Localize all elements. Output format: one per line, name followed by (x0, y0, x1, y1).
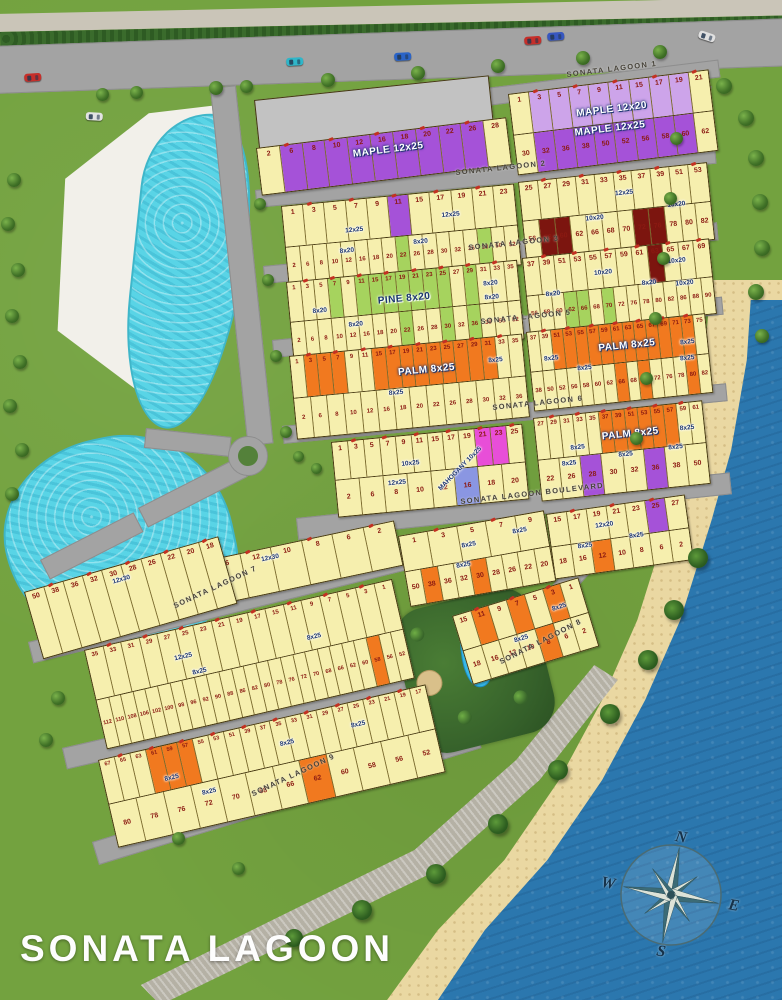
tree-icon (754, 240, 770, 256)
lot-number: 22 (433, 402, 440, 409)
lot-number: 58 (661, 132, 670, 140)
lot-number: 76 (666, 374, 673, 381)
lot-number: 29 (471, 342, 478, 349)
lot-number: 2 (266, 150, 271, 157)
lot-number: 3 (537, 94, 542, 101)
tree-icon (653, 45, 667, 59)
lot-number: 12 (598, 552, 607, 560)
lot-number: 11 (477, 610, 486, 619)
lot-number: 69 (697, 243, 705, 251)
lot-number: 12 (440, 484, 448, 492)
lot-number: 20 (540, 561, 549, 569)
lot-2[interactable]: 2 (336, 478, 363, 517)
lot-number: 51 (558, 257, 566, 265)
lot-number: 25 (510, 428, 518, 436)
palm-tree-icon (664, 600, 684, 620)
lot-number: 35 (618, 175, 626, 183)
lot-number: 25 (353, 704, 360, 711)
lot-number: 36 (651, 464, 659, 472)
palm-tree-icon (688, 548, 708, 568)
lot-35[interactable]: 35 (508, 335, 525, 377)
lot-number: 1 (382, 585, 387, 592)
lot-number: 16 (463, 482, 471, 490)
lot-number: 17 (385, 276, 392, 283)
lot-number: 21 (478, 190, 486, 198)
lot-number: 10 (416, 487, 424, 495)
lot-number: 61 (613, 326, 620, 333)
lot-number: 5 (322, 356, 326, 362)
lot-number: 25 (524, 185, 532, 193)
lot-number: 29 (145, 638, 153, 645)
lot-number: 7 (514, 600, 520, 608)
lot-number: 18 (400, 405, 407, 412)
lot-number: 57 (666, 407, 673, 414)
lot-number: 28 (491, 122, 500, 130)
lot-number: 1 (338, 445, 343, 452)
lot-number: 78 (276, 680, 283, 687)
lot-number: 18 (372, 255, 379, 262)
lot-number: 30 (444, 323, 451, 330)
lot-number: 29 (466, 268, 473, 275)
lot-8[interactable]: 8 (383, 473, 410, 512)
lot-number: 76 (177, 805, 186, 814)
lot-number: 28 (492, 569, 501, 577)
lot-number: 80 (655, 297, 662, 304)
lot-number: 60 (362, 660, 369, 667)
lot-number: 35 (507, 264, 514, 271)
lot-number: 5 (346, 593, 351, 600)
lot-number: 76 (630, 300, 637, 307)
lot-number: 25 (439, 271, 446, 278)
lot-number: 1 (412, 537, 417, 545)
tree-icon (748, 284, 764, 300)
lot-number: 27 (163, 634, 171, 641)
palm-tree-icon (352, 900, 372, 920)
lot-number: 6 (659, 544, 664, 551)
lot-number: 32 (542, 147, 551, 155)
lot-number: 6 (346, 534, 351, 542)
lot-number: 38 (535, 387, 542, 394)
lot-number: 18 (487, 480, 495, 488)
lot-69[interactable]: 69 (694, 239, 712, 277)
tree-icon (7, 173, 21, 187)
lot-number: 51 (229, 733, 236, 740)
lot-9[interactable]: 9 (515, 511, 549, 550)
compass-star (601, 825, 740, 964)
lot-number: 30 (476, 572, 485, 580)
lot-number: 33 (498, 339, 505, 346)
tree-icon (209, 81, 223, 95)
lot-number: 78 (678, 372, 685, 379)
compass-rose: N E S W (596, 822, 746, 969)
lot-number: 78 (669, 220, 677, 228)
lot-number: 35 (275, 722, 282, 729)
lot-number: 9 (350, 354, 354, 360)
lot-number: 19 (399, 275, 406, 282)
tree-icon (254, 198, 266, 210)
lot-number: 17 (655, 79, 664, 87)
lot-number: 51 (553, 332, 560, 339)
roundabout (229, 437, 267, 475)
lot-6[interactable]: 6 (359, 476, 386, 515)
lot-number: 72 (618, 301, 625, 308)
lot-number: 56 (641, 135, 650, 143)
lot-number: 16 (378, 136, 387, 144)
lot-number: 8 (335, 411, 339, 417)
lot-number: 50 (411, 583, 420, 591)
lot-number: 15 (272, 609, 280, 616)
lot-number: 25 (181, 630, 189, 637)
lot-number: 22 (400, 252, 407, 259)
lot-number: 19 (457, 192, 465, 200)
lot-number: 15 (635, 82, 644, 90)
lot-number: 2 (679, 541, 684, 548)
lot-number: 55 (653, 409, 660, 416)
lot-number: 36 (562, 145, 571, 153)
lot-number: 28 (588, 471, 596, 479)
lot-number: 23 (632, 505, 641, 513)
lot-number: 82 (701, 370, 708, 377)
lot-number: 5 (470, 527, 475, 535)
lot-90[interactable]: 90 (701, 277, 716, 314)
lot-number: 28 (128, 564, 137, 573)
lot-number: 68 (593, 304, 600, 311)
lot-number: 62 (350, 663, 357, 670)
tree-icon (411, 66, 425, 80)
lot-number: 27 (453, 269, 460, 276)
lot-number: 38 (427, 580, 436, 588)
lot-10[interactable]: 10 (407, 471, 434, 510)
lot-25[interactable]: 25 (506, 425, 524, 463)
lot-number: 21 (412, 273, 419, 280)
lot-number: 8 (320, 260, 324, 266)
lot-number: 28 (427, 250, 434, 257)
lot-number: 3 (354, 443, 359, 450)
lot-number: 50 (31, 592, 40, 601)
lot-number: 98 (178, 702, 185, 709)
lot-number: 30 (109, 570, 118, 579)
tree-icon (670, 132, 683, 145)
lot-23[interactable]: 23 (493, 185, 517, 226)
lot-number: 57 (604, 253, 612, 261)
lot-number: 7 (333, 281, 337, 287)
lot-number: 30 (609, 469, 617, 477)
lot-number: 57 (182, 743, 189, 750)
lot-number: 62 (575, 230, 583, 238)
lot-21[interactable]: 21 (689, 71, 713, 113)
lot-number: 15 (375, 351, 382, 358)
lot-number: 31 (484, 341, 491, 348)
tree-icon (738, 110, 754, 126)
lot-number: 21 (416, 347, 423, 354)
lot-number: 10 (331, 259, 338, 266)
lot-number: 53 (213, 736, 220, 743)
lot-number: 20 (416, 403, 423, 410)
lot-number: 36 (70, 581, 79, 590)
lot-number: 6 (306, 262, 310, 268)
lot-number: 58 (374, 657, 381, 664)
lot-number: 29 (550, 420, 557, 427)
lot-number: 2 (297, 338, 301, 344)
tree-icon (262, 274, 274, 286)
lot-number: 29 (322, 711, 329, 718)
lot-number: 70 (605, 303, 612, 310)
lot-53[interactable]: 53 (688, 163, 710, 202)
palm-tree-icon (548, 760, 568, 780)
lot-number: 9 (346, 280, 350, 286)
lot-number: 69 (660, 321, 667, 328)
compass-north-label: N (674, 828, 689, 848)
lot-number: 11 (358, 278, 365, 285)
lot-number: 62 (606, 380, 613, 387)
tree-icon (15, 443, 29, 457)
tree-icon (755, 329, 769, 343)
lot-number: 68 (606, 227, 614, 235)
lot-number: 22 (404, 327, 411, 334)
lot-number: 100 (164, 705, 174, 712)
lot-number: 19 (400, 693, 407, 700)
lot-number: 39 (541, 334, 548, 341)
lot-28[interactable]: 28 (484, 118, 511, 166)
lot-82[interactable]: 82 (695, 202, 714, 241)
tree-icon (649, 312, 662, 325)
lot-number: 1 (292, 285, 296, 291)
tree-icon (3, 399, 17, 413)
lot-number: 21 (695, 74, 704, 82)
lot-number: 22 (546, 475, 554, 483)
lot-number: 39 (244, 729, 251, 736)
lot-number: 23 (199, 626, 207, 633)
lot-number: 50 (693, 460, 701, 468)
lot-number: 12 (252, 553, 261, 561)
car-icon (547, 32, 565, 41)
lot-number: 86 (239, 688, 246, 695)
lot-number: 96 (190, 700, 197, 707)
lot-number: 29 (562, 181, 570, 189)
bush-icon (409, 626, 426, 643)
lot-number: 17 (436, 194, 444, 202)
lot-number: 90 (215, 694, 222, 701)
lot-number: 16 (359, 256, 366, 263)
lot-number: 2 (582, 628, 588, 636)
lot-number: 22 (446, 128, 455, 136)
lot-number: 30 (441, 249, 448, 256)
tree-icon (716, 78, 732, 94)
lot-number: 78 (150, 812, 159, 821)
lot-number: 62 (701, 128, 710, 136)
lot-number: 32 (630, 467, 638, 475)
lot-number: 3 (309, 358, 313, 364)
lot-number: 6 (370, 491, 375, 498)
lot-number: 19 (592, 510, 601, 518)
lot-number: 11 (290, 605, 298, 612)
lot-number: 10 (618, 549, 627, 557)
lot-number: 51 (675, 169, 683, 177)
lot-number: 66 (337, 666, 344, 673)
lot-number: 23 (368, 700, 375, 707)
lot-number: 16 (383, 406, 390, 413)
lot-number: 72 (638, 224, 646, 232)
lot-number: 102 (152, 708, 162, 715)
lot-number: 53 (565, 331, 572, 338)
lot-number: 39 (615, 413, 622, 420)
lot-number: 62 (313, 774, 322, 783)
lot-36[interactable]: 36 (509, 376, 528, 418)
lot-number: 59 (679, 406, 686, 413)
tree-icon (491, 59, 505, 73)
tree-icon (657, 252, 670, 265)
lot-number: 19 (675, 77, 684, 85)
lot-number: 8 (394, 489, 399, 496)
lot-number: 27 (543, 183, 551, 191)
lot-number: 8 (324, 335, 328, 341)
lot-number: 33 (600, 177, 608, 185)
lot-number: 50 (547, 386, 554, 393)
lot-number: 2 (347, 494, 352, 501)
lot-number: 30 (482, 397, 489, 404)
lot-number: 23 (494, 430, 502, 438)
tree-icon (664, 192, 677, 205)
lot-number: 66 (581, 305, 588, 312)
tree-icon (5, 309, 19, 323)
lot-number: 67 (682, 244, 690, 252)
lot-number: 106 (139, 711, 149, 718)
lot-number: 57 (589, 329, 596, 336)
lot-number: 23 (430, 346, 437, 353)
lot-number: 110 (115, 716, 125, 723)
lot-number: 6 (311, 336, 315, 342)
lot-number: 1 (295, 359, 299, 365)
lot-number: 19 (463, 433, 471, 441)
lot-number: 2 (292, 263, 296, 269)
tree-icon (311, 463, 322, 474)
lot-number: 37 (637, 173, 645, 181)
lot-number: 70 (231, 793, 240, 802)
lot-number: 90 (705, 292, 712, 299)
car-icon (286, 57, 303, 66)
lot-50[interactable]: 50 (686, 443, 710, 485)
lot-number: 72 (204, 799, 213, 808)
lot-number: 67 (104, 761, 111, 768)
lot-number: 2 (302, 414, 306, 420)
lot-number: 35 (91, 651, 99, 658)
lot-number: 7 (354, 203, 359, 210)
lot-number: 50 (601, 140, 610, 148)
lot-number: 27 (671, 499, 680, 507)
lot-number: 65 (120, 758, 127, 765)
lot-number: 63 (135, 754, 142, 761)
lot-number: 92 (202, 697, 209, 704)
lot-number: 8 (312, 145, 317, 152)
car-icon (86, 112, 103, 121)
lot-number: 15 (431, 436, 439, 444)
lot-number: 7 (577, 89, 582, 96)
lot-number: 7 (328, 597, 333, 604)
lot-number: 70 (313, 671, 320, 678)
lot-number: 37 (530, 335, 537, 342)
lot-number: 17 (254, 613, 262, 620)
lot-number: 108 (127, 713, 137, 720)
tree-icon (96, 88, 109, 101)
tree-icon (640, 372, 653, 385)
lot-number: 71 (672, 320, 679, 327)
lot-number: 26 (413, 251, 420, 258)
lot-number: 26 (449, 400, 456, 407)
lot-number: 9 (528, 517, 533, 525)
lot-number: 66 (591, 229, 599, 237)
lot-number: 17 (447, 434, 455, 442)
lot-number: 7 (385, 440, 390, 447)
lot-number: 1 (517, 96, 522, 103)
lot-number: 22 (524, 563, 533, 571)
lot-number: 112 (103, 719, 113, 726)
lot-number: 18 (559, 557, 568, 565)
car-icon (394, 52, 411, 61)
lot-35[interactable]: 35 (504, 261, 520, 301)
tree-icon (576, 51, 590, 65)
lot-number: 36 (444, 578, 453, 586)
lot-27[interactable]: 27 (665, 496, 688, 530)
lot-number: 3 (364, 589, 369, 596)
lot-number: 66 (618, 379, 625, 386)
lot-number: 9 (497, 605, 503, 613)
lot-number: 55 (589, 254, 597, 262)
lot-12[interactable]: 12 (431, 469, 458, 508)
lot-number: 12 (366, 408, 373, 415)
lot-number: 37 (260, 725, 267, 732)
bush-icon (456, 709, 473, 726)
lot-number: 15 (459, 616, 469, 625)
lot-number: 63 (625, 325, 632, 332)
tree-icon (293, 451, 304, 462)
lot-number: 59 (601, 327, 608, 334)
lot-number: 11 (362, 352, 369, 359)
lot-number: 10 (350, 410, 357, 417)
lot-number: 10 (332, 142, 341, 150)
lot-number: 60 (340, 768, 349, 777)
tree-icon (130, 86, 143, 99)
lot-number: 39 (656, 171, 664, 179)
lot-number: 3 (550, 589, 556, 597)
lot-number: 60 (594, 381, 601, 388)
lot-number: 33 (291, 718, 298, 725)
lot-number: 72 (301, 674, 308, 681)
lot-number: 56 (395, 755, 404, 764)
lot-number: 59 (166, 747, 173, 754)
lot-number: 72 (654, 375, 661, 382)
lot-62[interactable]: 62 (694, 111, 718, 153)
lot-number: 5 (333, 205, 338, 212)
lot-number: 20 (390, 328, 397, 335)
lot-number: 3 (312, 207, 317, 214)
lot-number: 18 (400, 133, 409, 141)
tree-icon (51, 691, 65, 705)
lot-number: 7 (336, 355, 340, 361)
lot-number: 52 (399, 651, 406, 658)
tree-icon (280, 426, 292, 438)
lot-number: 27 (537, 421, 544, 428)
lot-number: 17 (389, 350, 396, 357)
lot-number: 73 (684, 319, 691, 326)
lot-number: 26 (147, 559, 156, 568)
lot-number: 35 (589, 415, 596, 422)
lot-number: 31 (306, 715, 313, 722)
tree-icon (172, 832, 185, 845)
palm-tree-icon (600, 704, 620, 724)
site-plan-map: N E S W SONATA LAGOON 268101216182022262… (0, 0, 782, 1000)
lot-number: 35 (512, 338, 519, 345)
lot-number: 15 (553, 516, 562, 524)
